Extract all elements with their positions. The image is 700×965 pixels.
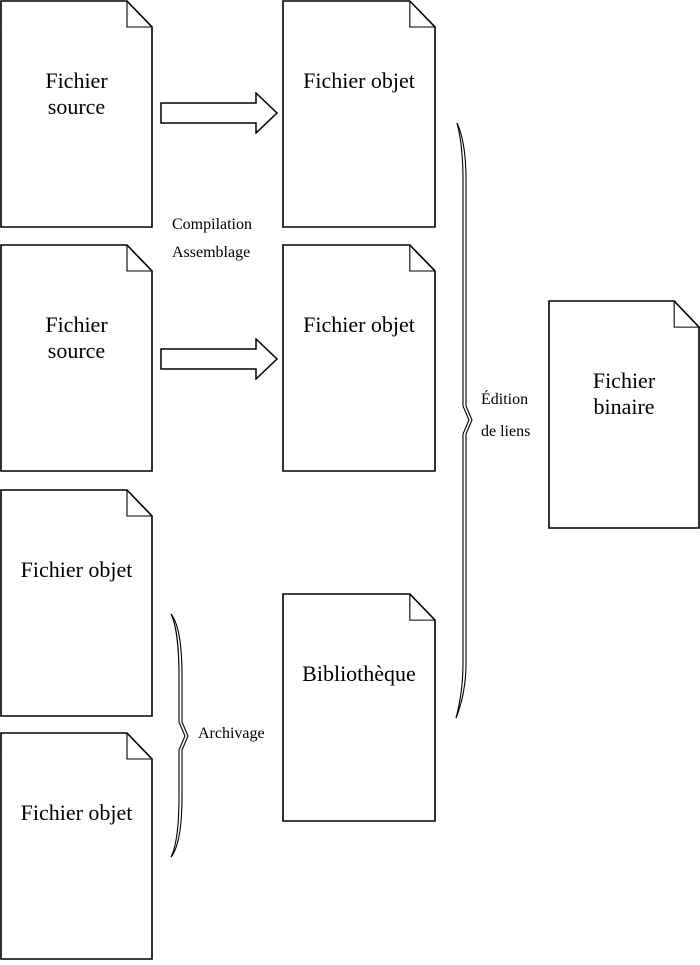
document-label-line2: source: [0, 94, 153, 120]
document-page-icon: [0, 732, 153, 960]
edition-label-line2: de liens: [481, 416, 530, 448]
document-label-line1: Bibliothèque: [282, 661, 436, 687]
document-label-line1: Fichier: [0, 312, 153, 338]
process-label-edition-de-liens: Édition de liens: [481, 384, 530, 448]
flow-arrow-icon-top: [160, 92, 279, 134]
document-bibliotheque: Bibliothèque: [282, 593, 436, 822]
document-fichier-source-2: Fichier source: [0, 244, 153, 472]
document-label-line2: binaire: [548, 394, 700, 420]
document-label-line2: source: [0, 338, 153, 364]
document-fichier-source-1: Fichier source: [0, 0, 153, 228]
document-page-icon: [282, 0, 436, 228]
process-label-compilation: Compilation Assemblage: [172, 211, 252, 267]
document-fichier-objet-mid-2: Fichier objet: [282, 244, 436, 472]
document-fichier-binaire: Fichier binaire: [548, 300, 700, 529]
document-label: Fichier source: [0, 68, 153, 120]
document-label-line1: Fichier objet: [0, 557, 153, 583]
document-fichier-objet-left-1: Fichier objet: [0, 489, 153, 717]
document-label-line1: Fichier: [548, 368, 700, 394]
document-label: Fichier objet: [0, 557, 153, 583]
document-label: Fichier objet: [282, 312, 436, 338]
flow-arrow-icon-bottom: [160, 338, 279, 380]
document-label-line1: Fichier objet: [282, 312, 436, 338]
curly-brace-icon-edition: [450, 118, 478, 724]
document-label-line1: Fichier objet: [282, 68, 436, 94]
document-label: Bibliothèque: [282, 661, 436, 687]
document-fichier-objet-mid-1: Fichier objet: [282, 0, 436, 228]
process-label-archivage: Archivage: [198, 720, 265, 748]
document-label: Fichier objet: [282, 68, 436, 94]
document-fichier-objet-left-2: Fichier objet: [0, 732, 153, 960]
document-label-line1: Fichier: [0, 68, 153, 94]
document-page-icon: [282, 244, 436, 472]
document-label: Fichier source: [0, 312, 153, 364]
compilation-label-line1: Compilation: [172, 211, 252, 239]
document-page-icon: [282, 593, 436, 822]
document-page-icon: [0, 489, 153, 717]
diagram-canvas: Fichier source Fichier source Fichier ob…: [0, 0, 700, 965]
edition-label-line1: Édition: [481, 384, 530, 416]
document-label: Fichier binaire: [548, 368, 700, 420]
document-label-line1: Fichier objet: [0, 800, 153, 826]
document-label: Fichier objet: [0, 800, 153, 826]
curly-brace-icon-archivage: [164, 608, 194, 864]
compilation-label-line2: Assemblage: [172, 239, 252, 267]
archivage-label: Archivage: [198, 720, 265, 748]
